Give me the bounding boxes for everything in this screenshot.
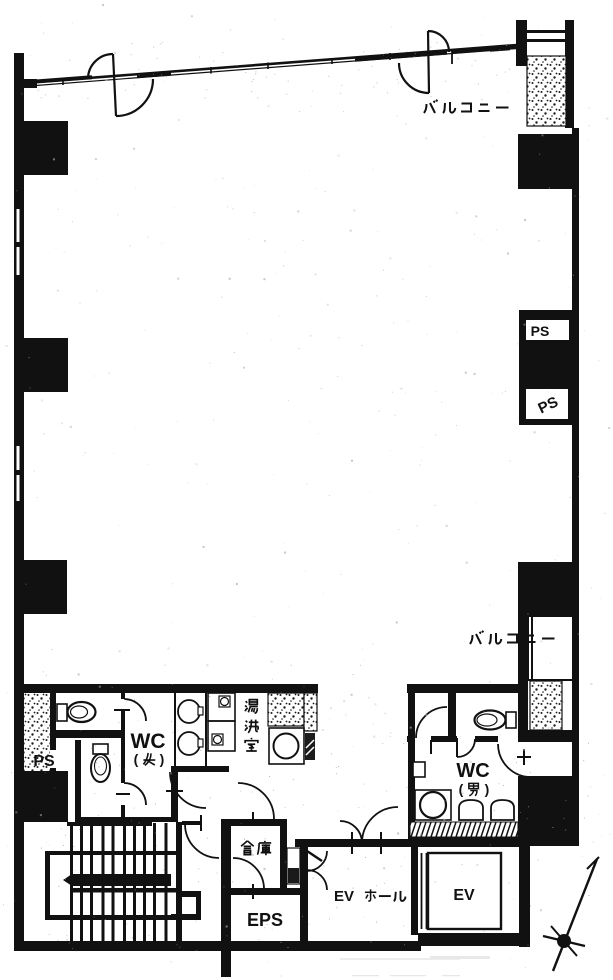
svg-text:WC: WC [131, 730, 166, 753]
svg-text:EV: EV [453, 887, 475, 904]
svg-text:PS: PS [33, 753, 55, 770]
svg-text:WC: WC [456, 760, 489, 782]
svg-text:(: ( [134, 751, 139, 767]
svg-text:PS: PS [531, 323, 550, 339]
svg-text:EPS: EPS [247, 910, 283, 930]
svg-text:EV: EV [334, 888, 354, 905]
svg-text:——: —— [442, 970, 460, 980]
svg-text:): ) [485, 781, 490, 797]
svg-text:): ) [160, 751, 165, 767]
svg-text:———: ——— [352, 970, 379, 980]
svg-text:————: ———— [390, 970, 426, 980]
svg-text:(: ( [459, 781, 464, 797]
